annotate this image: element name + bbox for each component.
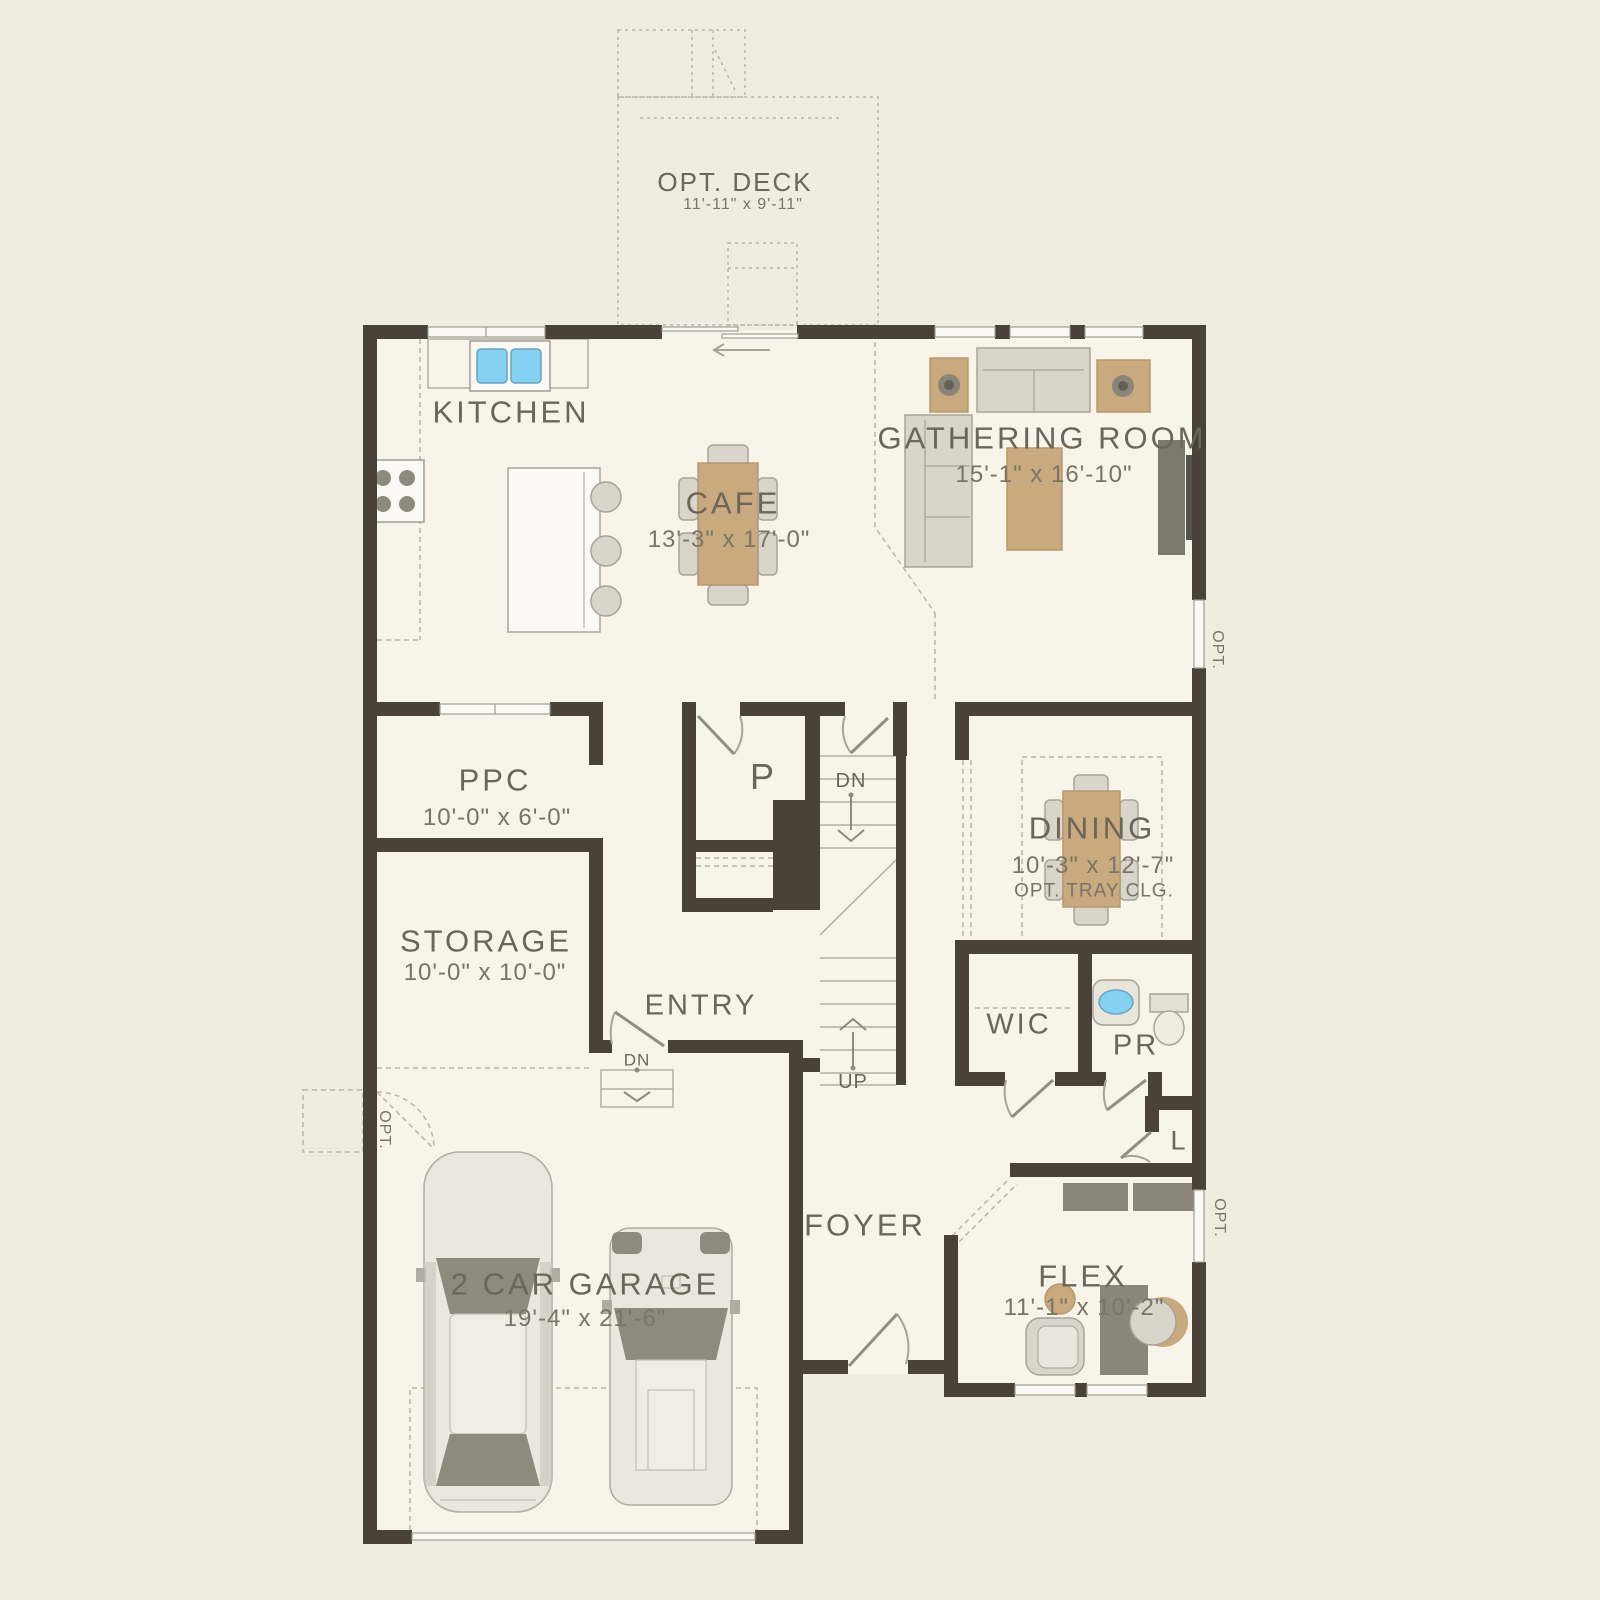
stairs-dn-label: DN <box>836 771 867 791</box>
garage-dims: 19'-4" x 21'-6" <box>504 1307 667 1331</box>
floor-plan-drawing <box>0 0 1600 1600</box>
kitchen-island <box>508 468 600 632</box>
toilet-tank <box>1150 994 1188 1012</box>
stool <box>591 536 621 566</box>
opt-window-flex <box>1194 1190 1204 1262</box>
pantry-label: P <box>750 759 774 795</box>
ppc-dims: 10'-0" x 6'-0" <box>423 806 571 830</box>
linen-label: L <box>1170 1128 1185 1155</box>
powder-room-label: PR <box>1113 1032 1159 1061</box>
storage-dims: 10'-0" x 10'-0" <box>404 961 567 985</box>
wic-label: WIC <box>986 1011 1051 1040</box>
cafe-label: CAFE <box>686 488 781 519</box>
cafe-table <box>698 463 758 585</box>
ppc-label: PPC <box>459 765 532 796</box>
foyer-label: FOYER <box>804 1210 926 1241</box>
car-sedan <box>416 1152 560 1512</box>
gathering-room-dims: 15'-1" x 16'-10" <box>956 463 1133 487</box>
dining-note: OPT. TRAY CLG. <box>1014 882 1174 901</box>
dining-dims: 10'-3" x 12'-7" <box>1012 854 1175 878</box>
garage-label: 2 CAR GARAGE <box>451 1269 720 1300</box>
flex-label: FLEX <box>1038 1261 1128 1292</box>
opt-deck-label: OPT. DECK <box>657 169 812 195</box>
gathering-room-label: GATHERING ROOM <box>877 423 1206 454</box>
cafe-dims: 13'-3" x 17'-0" <box>648 528 811 552</box>
opt-label-gathering-window: OPT. <box>1209 630 1225 670</box>
sink-bowl-right <box>511 349 541 383</box>
shelf <box>1133 1183 1197 1211</box>
floor-plan: OPT. DECK 11'-11" x 9'-11" KITCHEN CAFE … <box>0 0 1600 1600</box>
entry-label: ENTRY <box>645 992 758 1021</box>
sink <box>1099 990 1133 1014</box>
entry-dn-label: DN <box>624 1052 651 1069</box>
dining-label: DINING <box>1029 813 1156 844</box>
shelf <box>1063 1183 1128 1211</box>
stool <box>591 586 621 616</box>
media-console <box>1158 440 1185 555</box>
garage-door <box>412 1533 755 1540</box>
opt-window-gathering <box>1194 600 1204 668</box>
flex-dims: 11'-1" x 10'-2" <box>1004 1296 1165 1320</box>
kitchen-label: KITCHEN <box>432 397 589 428</box>
stool <box>591 482 621 512</box>
stairs-up-label: UP <box>838 1072 868 1092</box>
tv <box>1186 455 1192 540</box>
opt-label-storage-door: OPT. <box>376 1110 392 1150</box>
opt-label-flex-window: OPT. <box>1211 1198 1227 1238</box>
opt-deck-dims: 11'-11" x 9'-11" <box>683 197 803 213</box>
storage-label: STORAGE <box>400 926 572 957</box>
sliding-door <box>662 327 738 331</box>
sink-bowl-left <box>477 349 507 383</box>
